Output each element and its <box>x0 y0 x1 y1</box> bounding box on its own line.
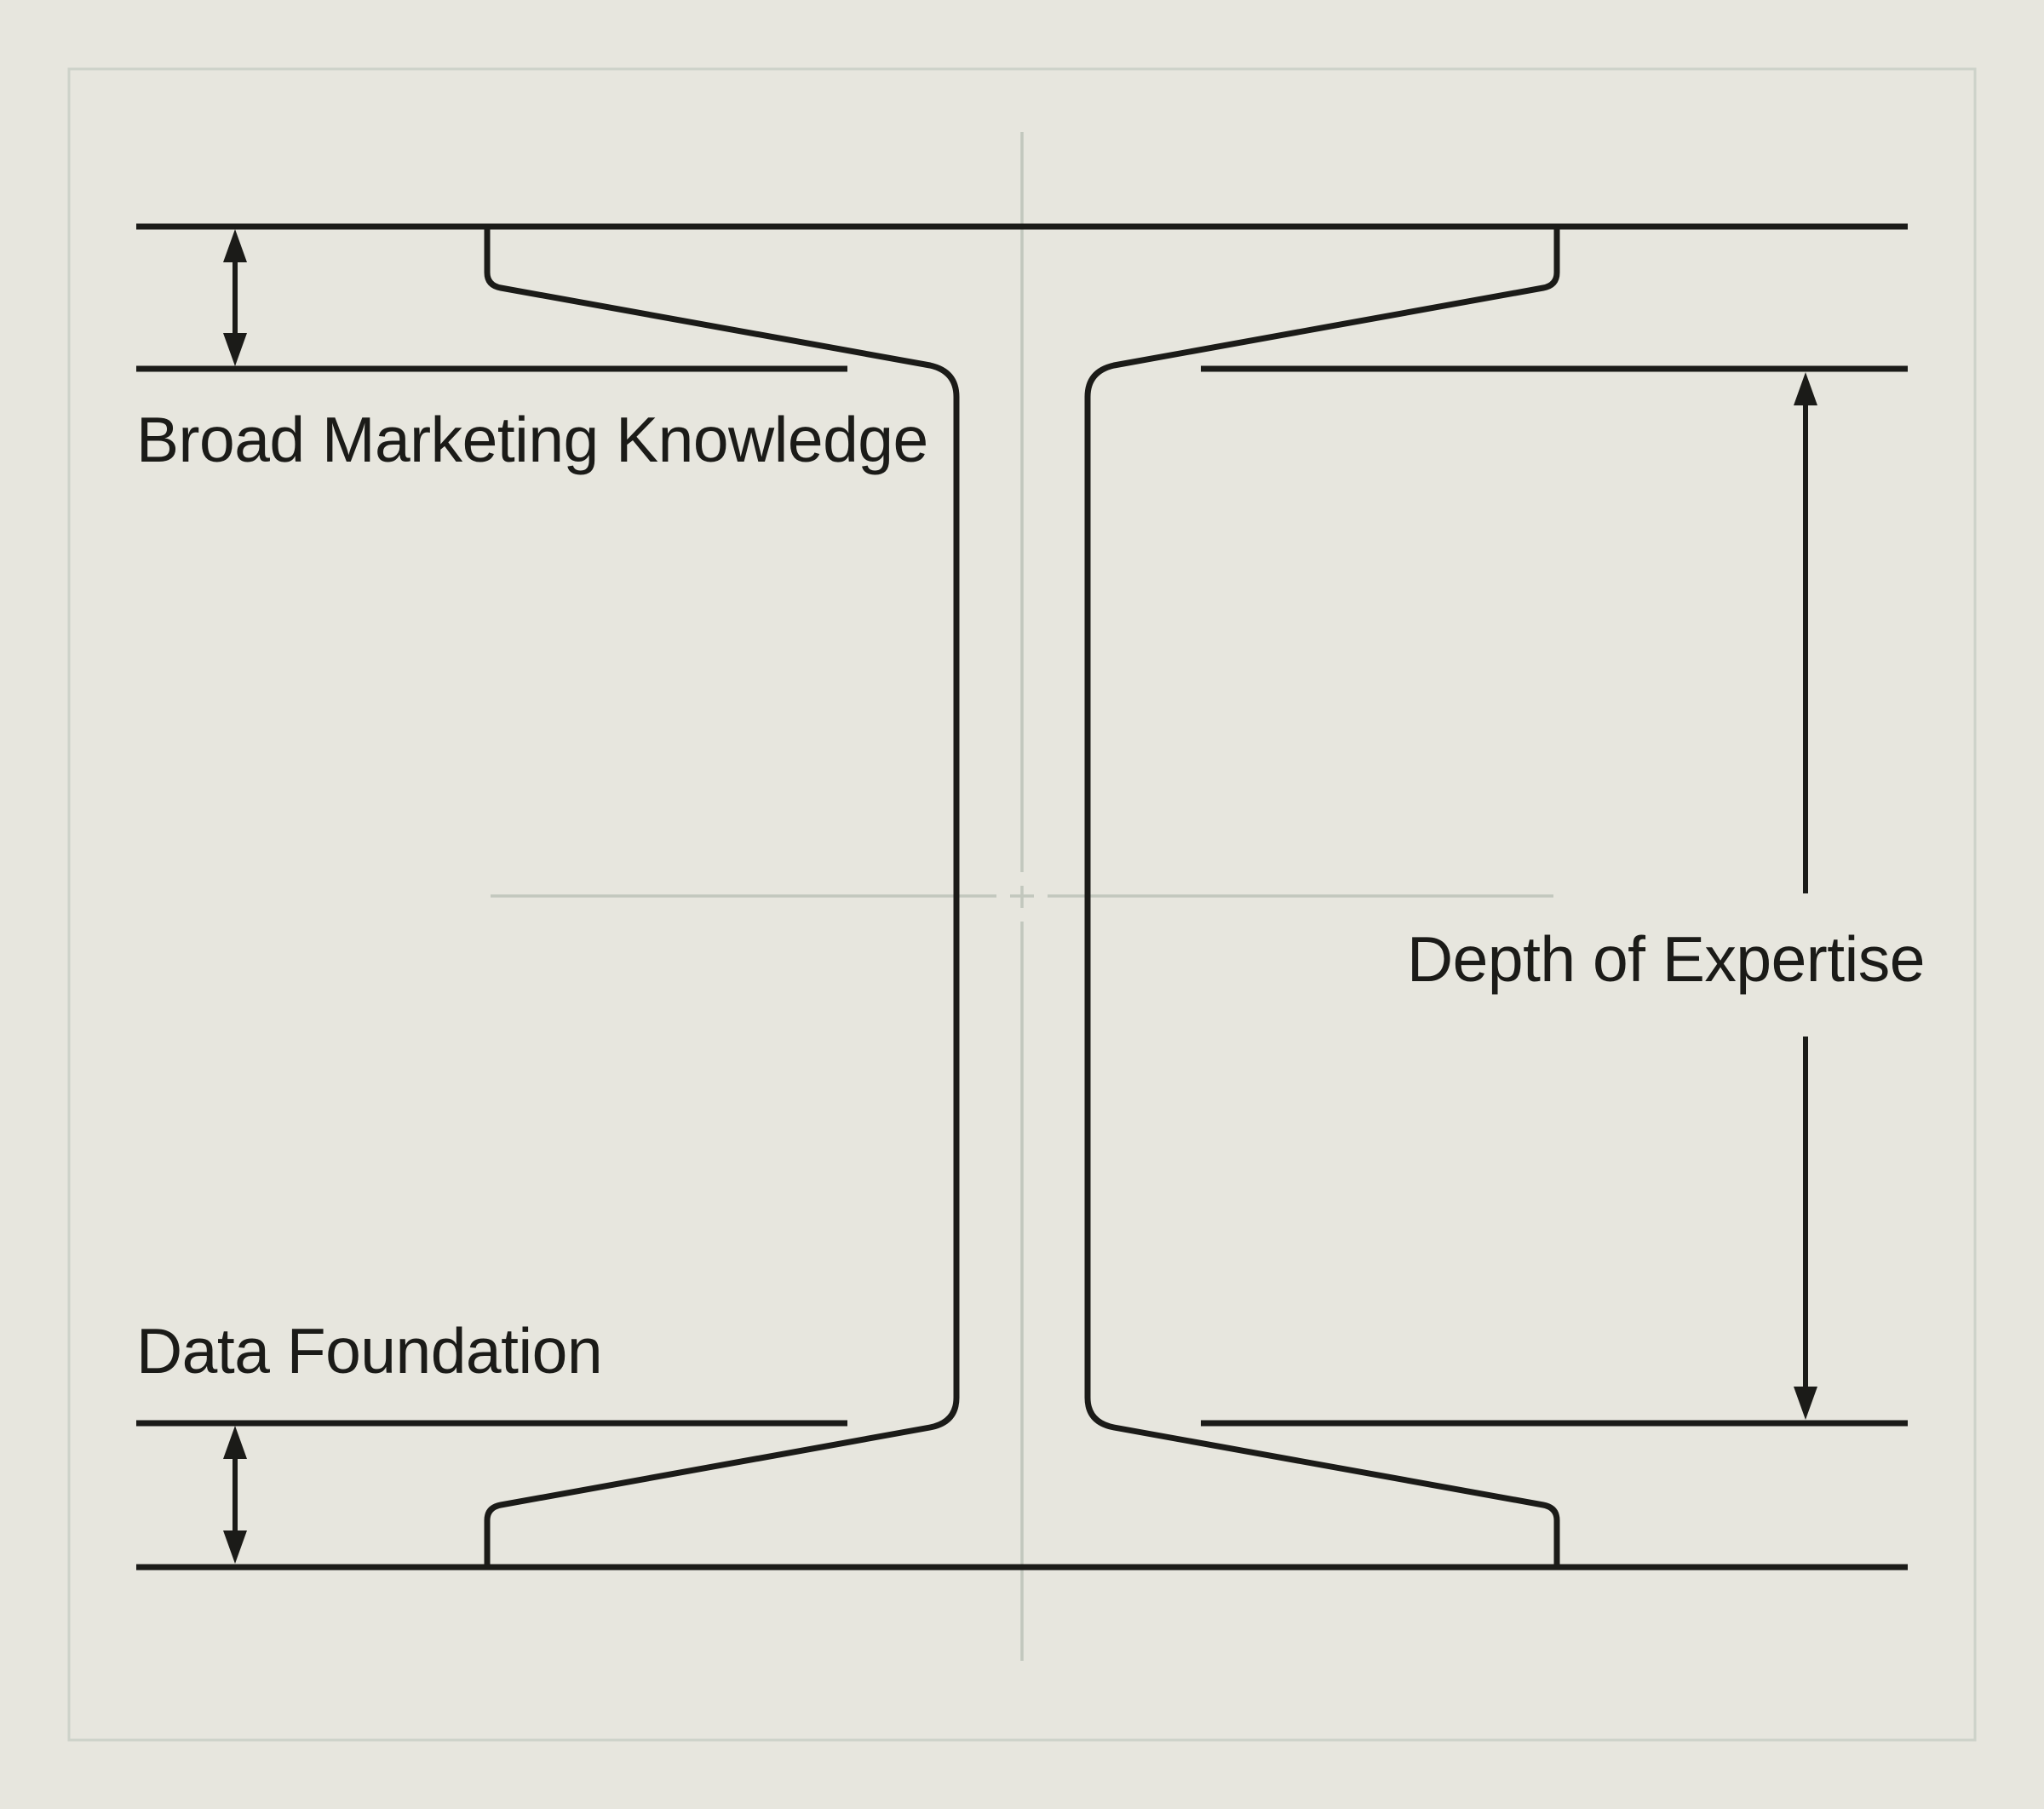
label-broad-marketing-knowledge: Broad Marketing Knowledge <box>136 408 928 472</box>
label-data-foundation: Data Foundation <box>136 1319 602 1383</box>
ibeam-dimension-diagram: Broad Marketing Knowledge Depth of Exper… <box>0 0 2044 1809</box>
arrow-up-icon <box>223 1426 247 1459</box>
arrow-down-icon <box>1794 1387 1817 1420</box>
arrow-down-icon <box>223 333 247 366</box>
label-depth-of-expertise: Depth of Expertise <box>1407 927 1925 991</box>
arrow-up-icon <box>1794 372 1817 405</box>
dimension-arrow-bottom-flange <box>223 1426 247 1564</box>
dimension-arrow-web-depth <box>1794 372 1817 1420</box>
dimension-arrow-top-flange <box>223 229 247 366</box>
diagram-canvas <box>0 0 2044 1809</box>
arrow-up-icon <box>223 229 247 262</box>
arrow-down-icon <box>223 1530 247 1564</box>
